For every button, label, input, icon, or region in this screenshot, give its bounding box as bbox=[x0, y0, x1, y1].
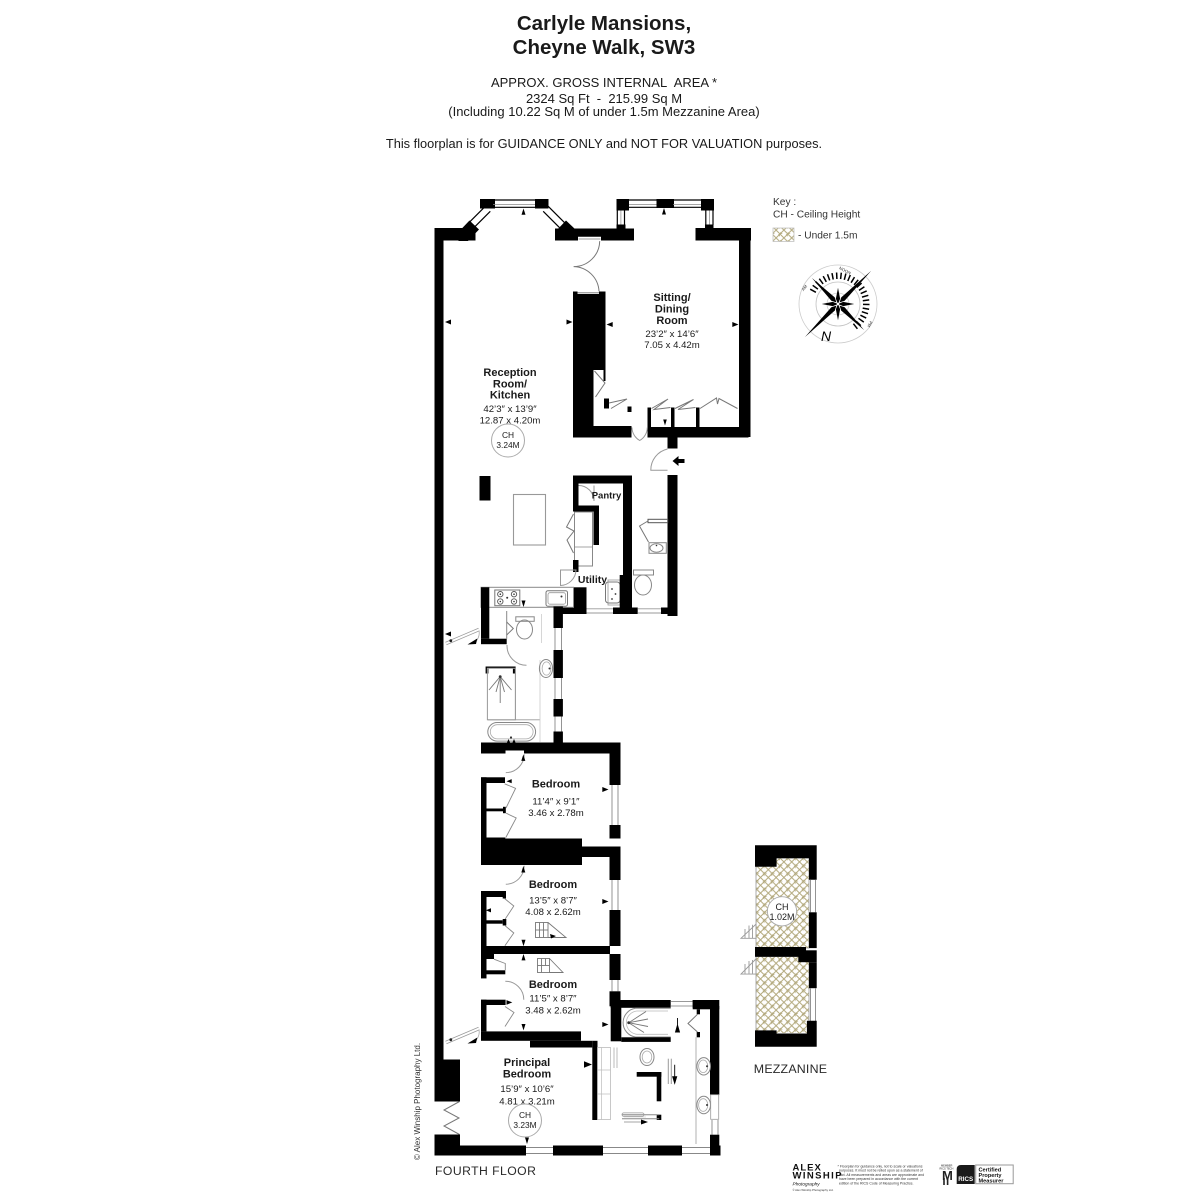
svg-text:FOURTH FLOOR: FOURTH FLOOR bbox=[435, 1164, 536, 1178]
svg-text:- Under 1.5m: - Under 1.5m bbox=[798, 231, 857, 242]
svg-text:CH: CH bbox=[519, 1110, 531, 1120]
svg-text:Room: Room bbox=[656, 315, 687, 327]
svg-text:WINSHIP: WINSHIP bbox=[793, 1171, 843, 1182]
svg-text:Bedroom: Bedroom bbox=[529, 979, 578, 991]
svg-text:Bedroom: Bedroom bbox=[529, 879, 578, 891]
svg-text:CH: CH bbox=[502, 430, 514, 440]
svg-text:Dining: Dining bbox=[655, 304, 689, 316]
svg-text:11’4″ x 9’1″: 11’4″ x 9’1″ bbox=[532, 797, 580, 808]
svg-text:3.46 x 2.78m: 3.46 x 2.78m bbox=[528, 808, 583, 819]
svg-text:3.24M: 3.24M bbox=[496, 440, 519, 450]
svg-text:Reception: Reception bbox=[483, 367, 536, 379]
svg-text:Principal: Principal bbox=[504, 1057, 550, 1069]
svg-text:3.48 x 2.62m: 3.48 x 2.62m bbox=[525, 1005, 580, 1016]
svg-text:11’5″ x 8’7″: 11’5″ x 8’7″ bbox=[529, 994, 577, 1005]
svg-text:Room/: Room/ bbox=[493, 378, 527, 390]
svg-text:Pantry: Pantry bbox=[592, 491, 622, 502]
svg-text:Sitting/: Sitting/ bbox=[653, 292, 690, 304]
svg-text:© Alex Winship Photography Ltd: © Alex Winship Photography Ltd. bbox=[413, 1043, 422, 1160]
svg-text:Kitchen: Kitchen bbox=[490, 390, 531, 402]
svg-text:AM: AM bbox=[800, 283, 808, 291]
svg-text:N: N bbox=[821, 328, 832, 344]
svg-text:Bedroom: Bedroom bbox=[503, 1068, 552, 1080]
svg-text:CH - Ceiling Height: CH - Ceiling Height bbox=[773, 210, 860, 221]
svg-text:© Alex Winship Photography Ltd: © Alex Winship Photography Ltd. bbox=[793, 1188, 834, 1192]
svg-text:Measurer: Measurer bbox=[979, 1179, 1005, 1185]
svg-text:3.23M: 3.23M bbox=[513, 1120, 536, 1130]
svg-text:12.87 x 4.20m: 12.87 x 4.20m bbox=[480, 415, 541, 426]
svg-text:42’3″ x 13’9″: 42’3″ x 13’9″ bbox=[483, 404, 537, 415]
svg-text:MEZZANINE: MEZZANINE bbox=[754, 1062, 827, 1076]
svg-text:edition of the RICS Code of Me: edition of the RICS Code of Measuring Pr… bbox=[839, 1181, 914, 1185]
svg-text:PM: PM bbox=[866, 320, 874, 328]
svg-text:1.02M: 1.02M bbox=[769, 912, 794, 922]
svg-text:7.05 x 4.42m: 7.05 x 4.42m bbox=[644, 340, 699, 351]
svg-text:Photography: Photography bbox=[793, 1182, 821, 1188]
svg-text:15’9″ x 10’6″: 15’9″ x 10’6″ bbox=[500, 1084, 554, 1095]
svg-text:Bedroom: Bedroom bbox=[532, 779, 581, 791]
svg-text:Utility: Utility bbox=[578, 574, 607, 586]
svg-text:Key :: Key : bbox=[773, 197, 796, 208]
svg-text:13’5″ x 8’7″: 13’5″ x 8’7″ bbox=[529, 896, 577, 907]
svg-text:CH: CH bbox=[776, 902, 789, 912]
svg-text:RICS: RICS bbox=[958, 1176, 973, 1183]
svg-text:4.08 x 2.62m: 4.08 x 2.62m bbox=[525, 907, 580, 918]
svg-text:23’2″ x 14’6″: 23’2″ x 14’6″ bbox=[645, 329, 699, 340]
svg-text:4.81 x 3.21m: 4.81 x 3.21m bbox=[499, 1097, 554, 1108]
